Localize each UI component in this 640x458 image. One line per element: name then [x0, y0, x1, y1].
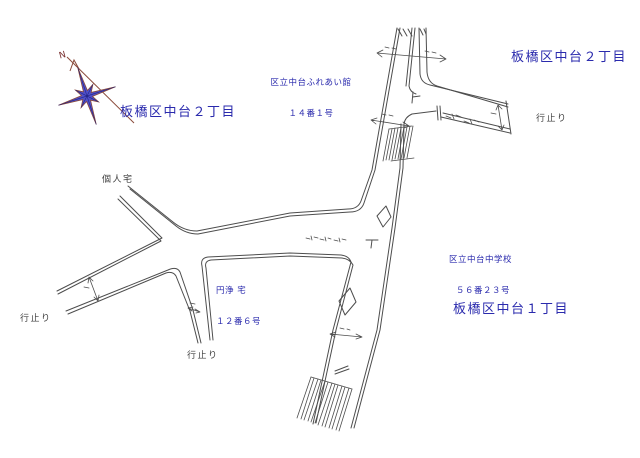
enjo-address: １２番６号	[216, 316, 261, 329]
fureaikan-name: 区立中台ふれあい館	[266, 77, 356, 90]
compass-star	[49, 58, 125, 134]
east-branch-road	[419, 28, 511, 134]
diamond-marking-lower	[339, 288, 356, 315]
enjo-name: 円浄 宅	[216, 285, 261, 298]
label-dead-end-west: 行止り	[20, 315, 52, 325]
label-dead-end-south: 行止り	[187, 352, 219, 362]
school-name: 区立中台中学校	[449, 254, 512, 267]
compass-north-label: N	[58, 50, 67, 61]
t-marking-lower	[366, 240, 378, 248]
school-address: ５６番２３号	[456, 285, 512, 298]
label-enjo-house: 円浄 宅 １２番６号	[216, 266, 261, 348]
diamond-marking-upper	[377, 206, 391, 227]
label-school: 区立中台中学校 ５６番２３号	[449, 235, 512, 317]
label-district-nakadai2-west: 板橋区中台２丁目	[120, 106, 236, 120]
fureaikan-address: １４番１号	[266, 108, 356, 121]
label-fureaikan: 区立中台ふれあい館 １４番１号	[266, 58, 356, 140]
west-y-roads	[57, 196, 201, 343]
crosswalk-hatch	[383, 126, 414, 161]
compass-rose-icon: N	[49, 50, 134, 134]
label-private-house: 個人宅	[102, 176, 134, 186]
label-district-nakadai2-east: 板橋区中台２丁目	[511, 51, 627, 65]
side-stub	[335, 366, 349, 374]
map-page: N 板橋区中台２丁目 板橋区中台２丁目 板橋区中台１丁目 区立中台ふれあい館 １…	[0, 0, 640, 458]
label-dead-end-east: 行止り	[536, 115, 568, 125]
